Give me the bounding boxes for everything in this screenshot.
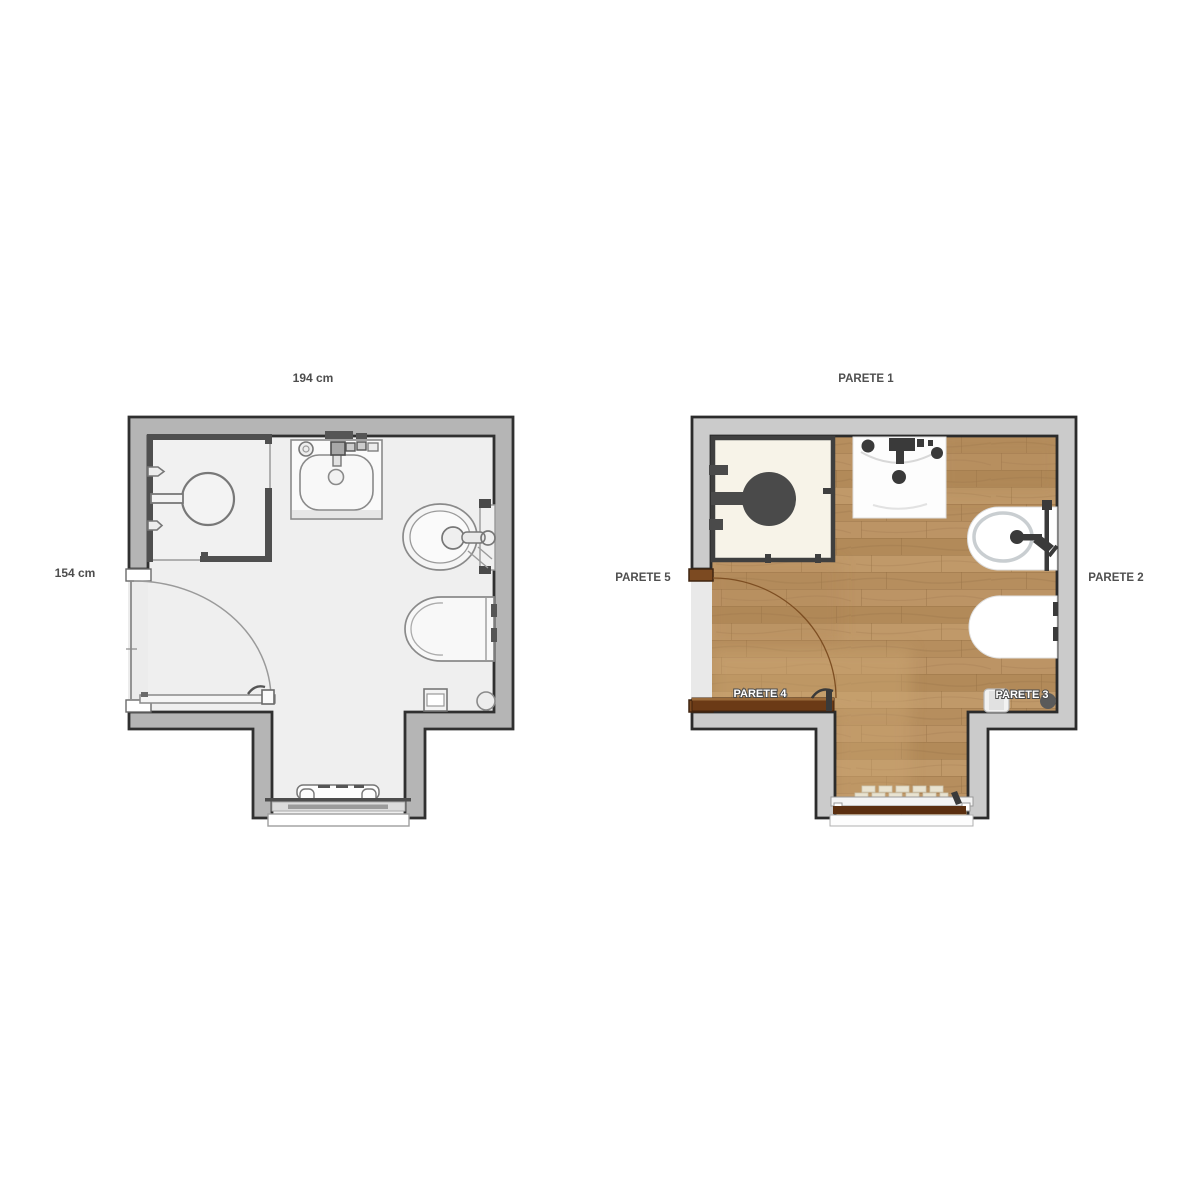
svg-text:194 cm: 194 cm xyxy=(293,371,334,385)
svg-text:PARETE 4: PARETE 4 xyxy=(734,688,788,700)
svg-text:PARETE 3: PARETE 3 xyxy=(996,689,1049,701)
svg-text:PARETE 2: PARETE 2 xyxy=(1088,572,1143,584)
svg-text:PARETE 1: PARETE 1 xyxy=(838,373,894,385)
svg-text:154 cm: 154 cm xyxy=(55,566,96,580)
svg-text:PARETE 5: PARETE 5 xyxy=(615,572,671,584)
